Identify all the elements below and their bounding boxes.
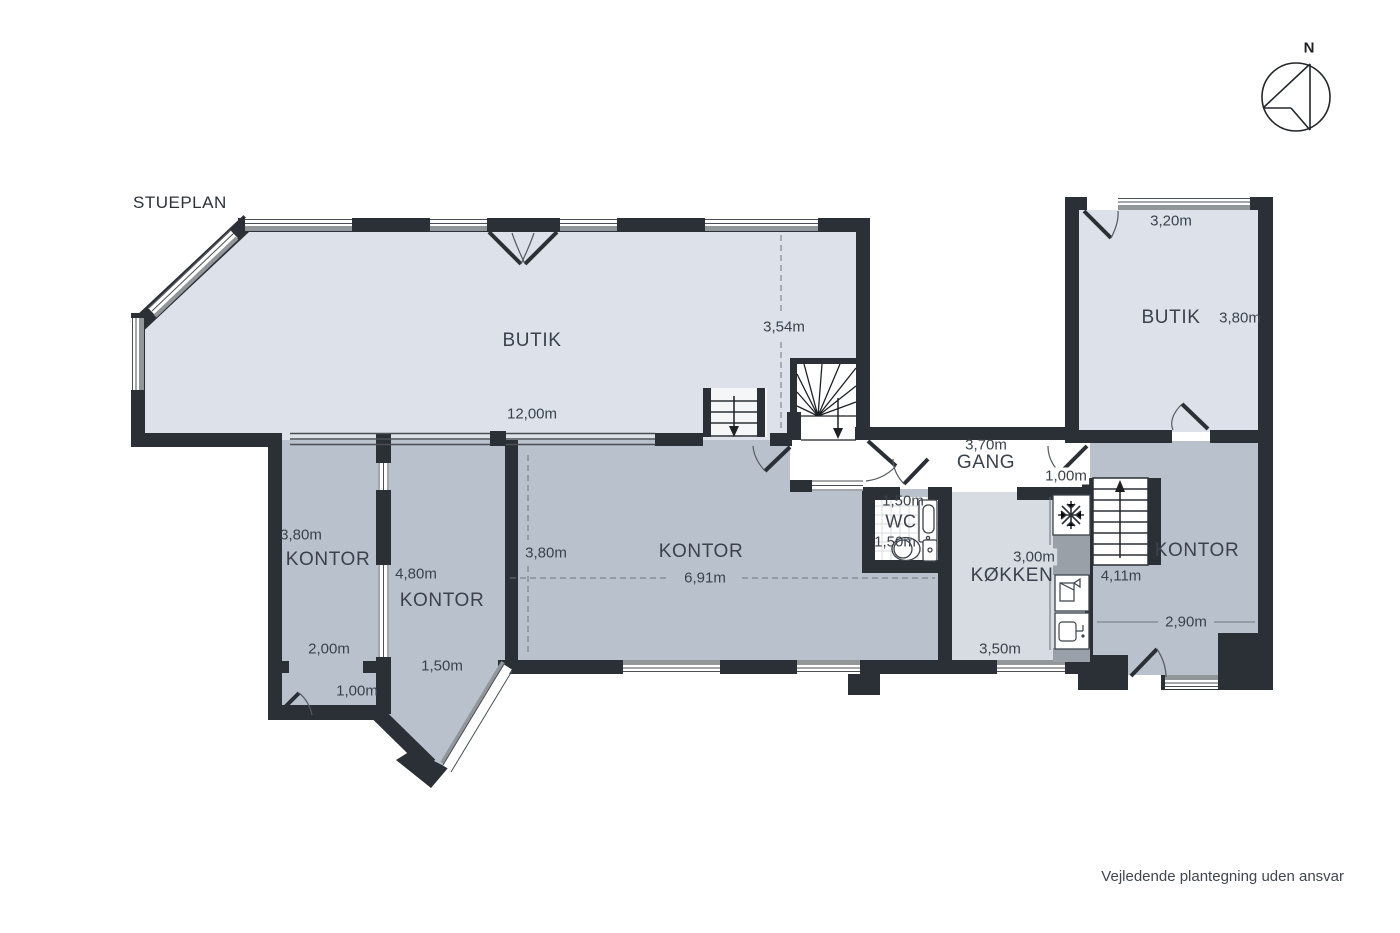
room-label-butik-main: BUTIK	[503, 330, 562, 352]
room-label-kontor-mid: KONTOR	[400, 590, 485, 612]
dim-butik-main-width: 12,00m	[507, 406, 557, 423]
room-label-kontor-right: KONTOR	[1155, 540, 1240, 562]
dim-kokken-height: 3,00m	[1011, 549, 1057, 566]
dim-kontor-left-width: 2,00m	[308, 641, 350, 658]
kitchen-fixtures	[1050, 495, 1090, 662]
room-label-kokken: KØKKEN	[971, 565, 1054, 587]
dim-kontor-mid-width: 1,50m	[421, 658, 463, 675]
dim-kontor-mid-height: 4,80m	[395, 566, 437, 583]
room-label-kontor-main: KONTOR	[659, 541, 744, 563]
dim-gang-door: 1,00m	[1043, 468, 1089, 485]
dim-kokken-width: 3,50m	[979, 641, 1021, 658]
room-label-wc: WC	[885, 512, 916, 533]
dim-butik-right-top: 3,20m	[1150, 213, 1192, 230]
north-compass-icon	[1262, 63, 1330, 131]
dim-kontor-main-width: 6,91m	[682, 570, 728, 587]
dim-wc-bottom: 1,50m	[874, 534, 916, 551]
compass-north-label: N	[1304, 40, 1315, 57]
kitchen-sink-icon	[1055, 613, 1089, 649]
room-label-gang: GANG	[957, 452, 1015, 474]
dim-kontor-left-height: 3,80m	[280, 527, 322, 544]
floor-plan-page: STUEPLAN N Vejledende plantegning uden a…	[0, 0, 1400, 933]
dim-butik-main-height: 3,54m	[761, 319, 807, 336]
dim-kontor-left-door: 1,00m	[336, 683, 378, 700]
disclaimer-text: Vejledende plantegning uden ansvar	[1101, 868, 1344, 885]
dim-kontor-right-stairs: 4,11m	[1101, 568, 1142, 585]
dim-wc-top: 1,50m	[882, 493, 924, 510]
room-label-kontor-left: KONTOR	[286, 549, 371, 571]
dim-kontor-right-width: 2,90m	[1163, 614, 1209, 631]
floor-plan-svg	[0, 0, 1400, 933]
dim-kontor-main-height: 3,80m	[523, 545, 569, 562]
dim-butik-right-side: 3,80m	[1219, 310, 1261, 327]
page-title: STUEPLAN	[133, 193, 227, 213]
dim-gang-width: 3,70m	[965, 437, 1007, 454]
room-label-butik-right: BUTIK	[1142, 307, 1201, 329]
